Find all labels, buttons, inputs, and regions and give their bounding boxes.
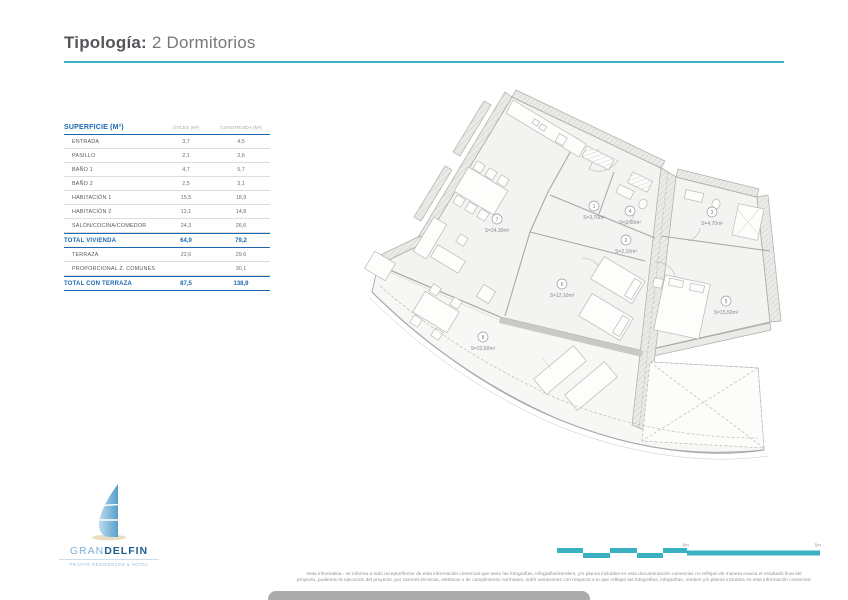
col-header-construida: CONSTRUIDA (M²) xyxy=(212,126,270,131)
page-title-value: 2 Dormitorios xyxy=(152,33,256,52)
row-utiles: 24,3 xyxy=(160,223,212,229)
row-utiles: 12,1 xyxy=(160,209,212,215)
svg-text:2: 2 xyxy=(625,238,628,244)
table-body: ENTRADA3,74,5PASILLO2,12,6BAÑO 14,75,7BA… xyxy=(64,135,270,291)
row-construida: 14,8 xyxy=(212,209,270,215)
svg-text:S=3,70m²: S=3,70m² xyxy=(583,215,605,221)
brand-gran: GRAN xyxy=(70,545,104,557)
row-utiles: 2,5 xyxy=(160,181,212,187)
page-title-label: Tipología: xyxy=(64,33,147,52)
table-row: TOTAL VIVIENDA64,979,2 xyxy=(64,233,270,248)
svg-text:5: 5 xyxy=(725,299,728,305)
brand-wordmark: GRANDELFIN xyxy=(59,545,159,557)
svg-text:3: 3 xyxy=(711,210,714,216)
svg-text:S=2,50m²: S=2,50m² xyxy=(619,220,641,226)
table-row: PASILLO2,12,6 xyxy=(64,149,270,163)
table-row: ENTRADA3,74,5 xyxy=(64,135,270,149)
row-label: TOTAL VIVIENDA xyxy=(64,238,160,244)
col-header-utiles: ÚTILES (M²) xyxy=(160,126,212,131)
row-construida: 18,9 xyxy=(212,195,270,201)
svg-text:4: 4 xyxy=(629,209,632,215)
svg-text:1: 1 xyxy=(593,204,596,210)
row-construida: 138,9 xyxy=(212,281,270,287)
floor-plan: 1S=3,70m²4S=2,50m²3S=4,70m²2S=2,10m²6S=1… xyxy=(355,80,815,485)
table-header: SUPERFICIE (M²) ÚTILES (M²) CONSTRUIDA (… xyxy=(64,124,270,135)
table-row: PROPORCIONAL Z. COMUNES30,1 xyxy=(64,262,270,276)
table-row: TERRAZA22,629,6 xyxy=(64,248,270,262)
row-utiles: 87,5 xyxy=(160,281,212,287)
footnote-line2: proyecto, pudiendo la ejecución del proy… xyxy=(276,578,832,584)
svg-text:S=4,70m²: S=4,70m² xyxy=(701,221,723,227)
table-row: HABITACIÓN 212,114,8 xyxy=(64,205,270,219)
legal-footnote: Nota informativa.- se informa a todo rec… xyxy=(276,572,832,584)
row-utiles: 2,1 xyxy=(160,153,212,159)
brand-logo: GRANDELFIN PRIVATE RESIDENCES & HOTEL xyxy=(59,483,159,567)
brand-delfin: DELFIN xyxy=(104,545,148,557)
row-construida: 79,2 xyxy=(212,238,270,244)
scale-zero-label: 0m xyxy=(683,543,690,548)
row-label: SALÓN/COCINA/COMEDOR xyxy=(64,223,160,229)
row-label: TOTAL CON TERRAZA xyxy=(64,281,160,287)
row-label: BAÑO 2 xyxy=(64,181,160,187)
bottom-overlay-bar xyxy=(268,591,590,600)
svg-text:8: 8 xyxy=(482,335,485,341)
svg-text:S=2,10m²: S=2,10m² xyxy=(615,249,637,255)
row-utiles: 3,7 xyxy=(160,139,212,145)
svg-text:7: 7 xyxy=(496,217,499,223)
row-construida: 3,1 xyxy=(212,181,270,187)
table-row: BAÑO 22,53,1 xyxy=(64,177,270,191)
svg-text:6: 6 xyxy=(561,282,564,288)
row-label: PROPORCIONAL Z. COMUNES xyxy=(64,266,160,272)
row-label: BAÑO 1 xyxy=(64,167,160,173)
table-row: HABITACIÓN 115,518,9 xyxy=(64,191,270,205)
surface-table: SUPERFICIE (M²) ÚTILES (M²) CONSTRUIDA (… xyxy=(64,124,270,291)
row-utiles: 15,5 xyxy=(160,195,212,201)
row-label: PASILLO xyxy=(64,153,160,159)
svg-text:S=12,10m²: S=12,10m² xyxy=(550,293,575,299)
row-utiles: 64,9 xyxy=(160,238,212,244)
row-utiles: 4,7 xyxy=(160,167,212,173)
sail-building-icon xyxy=(90,483,128,541)
row-label: HABITACIÓN 2 xyxy=(64,209,160,215)
svg-text:S=22,60m²: S=22,60m² xyxy=(471,346,496,352)
row-construida: 26,6 xyxy=(212,223,270,229)
row-construida: 30,1 xyxy=(212,266,270,272)
row-construida: 4,5 xyxy=(212,139,270,145)
brand-subtitle: PRIVATE RESIDENCES & HOTEL xyxy=(59,559,159,567)
table-row: TOTAL CON TERRAZA87,5138,9 xyxy=(64,276,270,291)
row-construida: 29,6 xyxy=(212,252,270,258)
scale-end-label: 5m xyxy=(815,543,822,548)
scale-bar: 0m 5m xyxy=(552,538,824,562)
table-title: SUPERFICIE (M²) xyxy=(64,124,160,131)
row-label: ENTRADA xyxy=(64,139,160,145)
row-label: HABITACIÓN 1 xyxy=(64,195,160,201)
page-title: Tipología:2 Dormitorios xyxy=(64,33,256,53)
title-underline xyxy=(64,61,784,63)
table-row: SALÓN/COCINA/COMEDOR24,326,6 xyxy=(64,219,270,233)
table-row: BAÑO 14,75,7 xyxy=(64,163,270,177)
row-construida: 2,6 xyxy=(212,153,270,159)
row-construida: 5,7 xyxy=(212,167,270,173)
svg-text:S=15,50m²: S=15,50m² xyxy=(714,310,739,316)
row-label: TERRAZA xyxy=(64,252,160,258)
svg-text:S=24,30m²: S=24,30m² xyxy=(485,228,510,234)
row-utiles: 22,6 xyxy=(160,252,212,258)
